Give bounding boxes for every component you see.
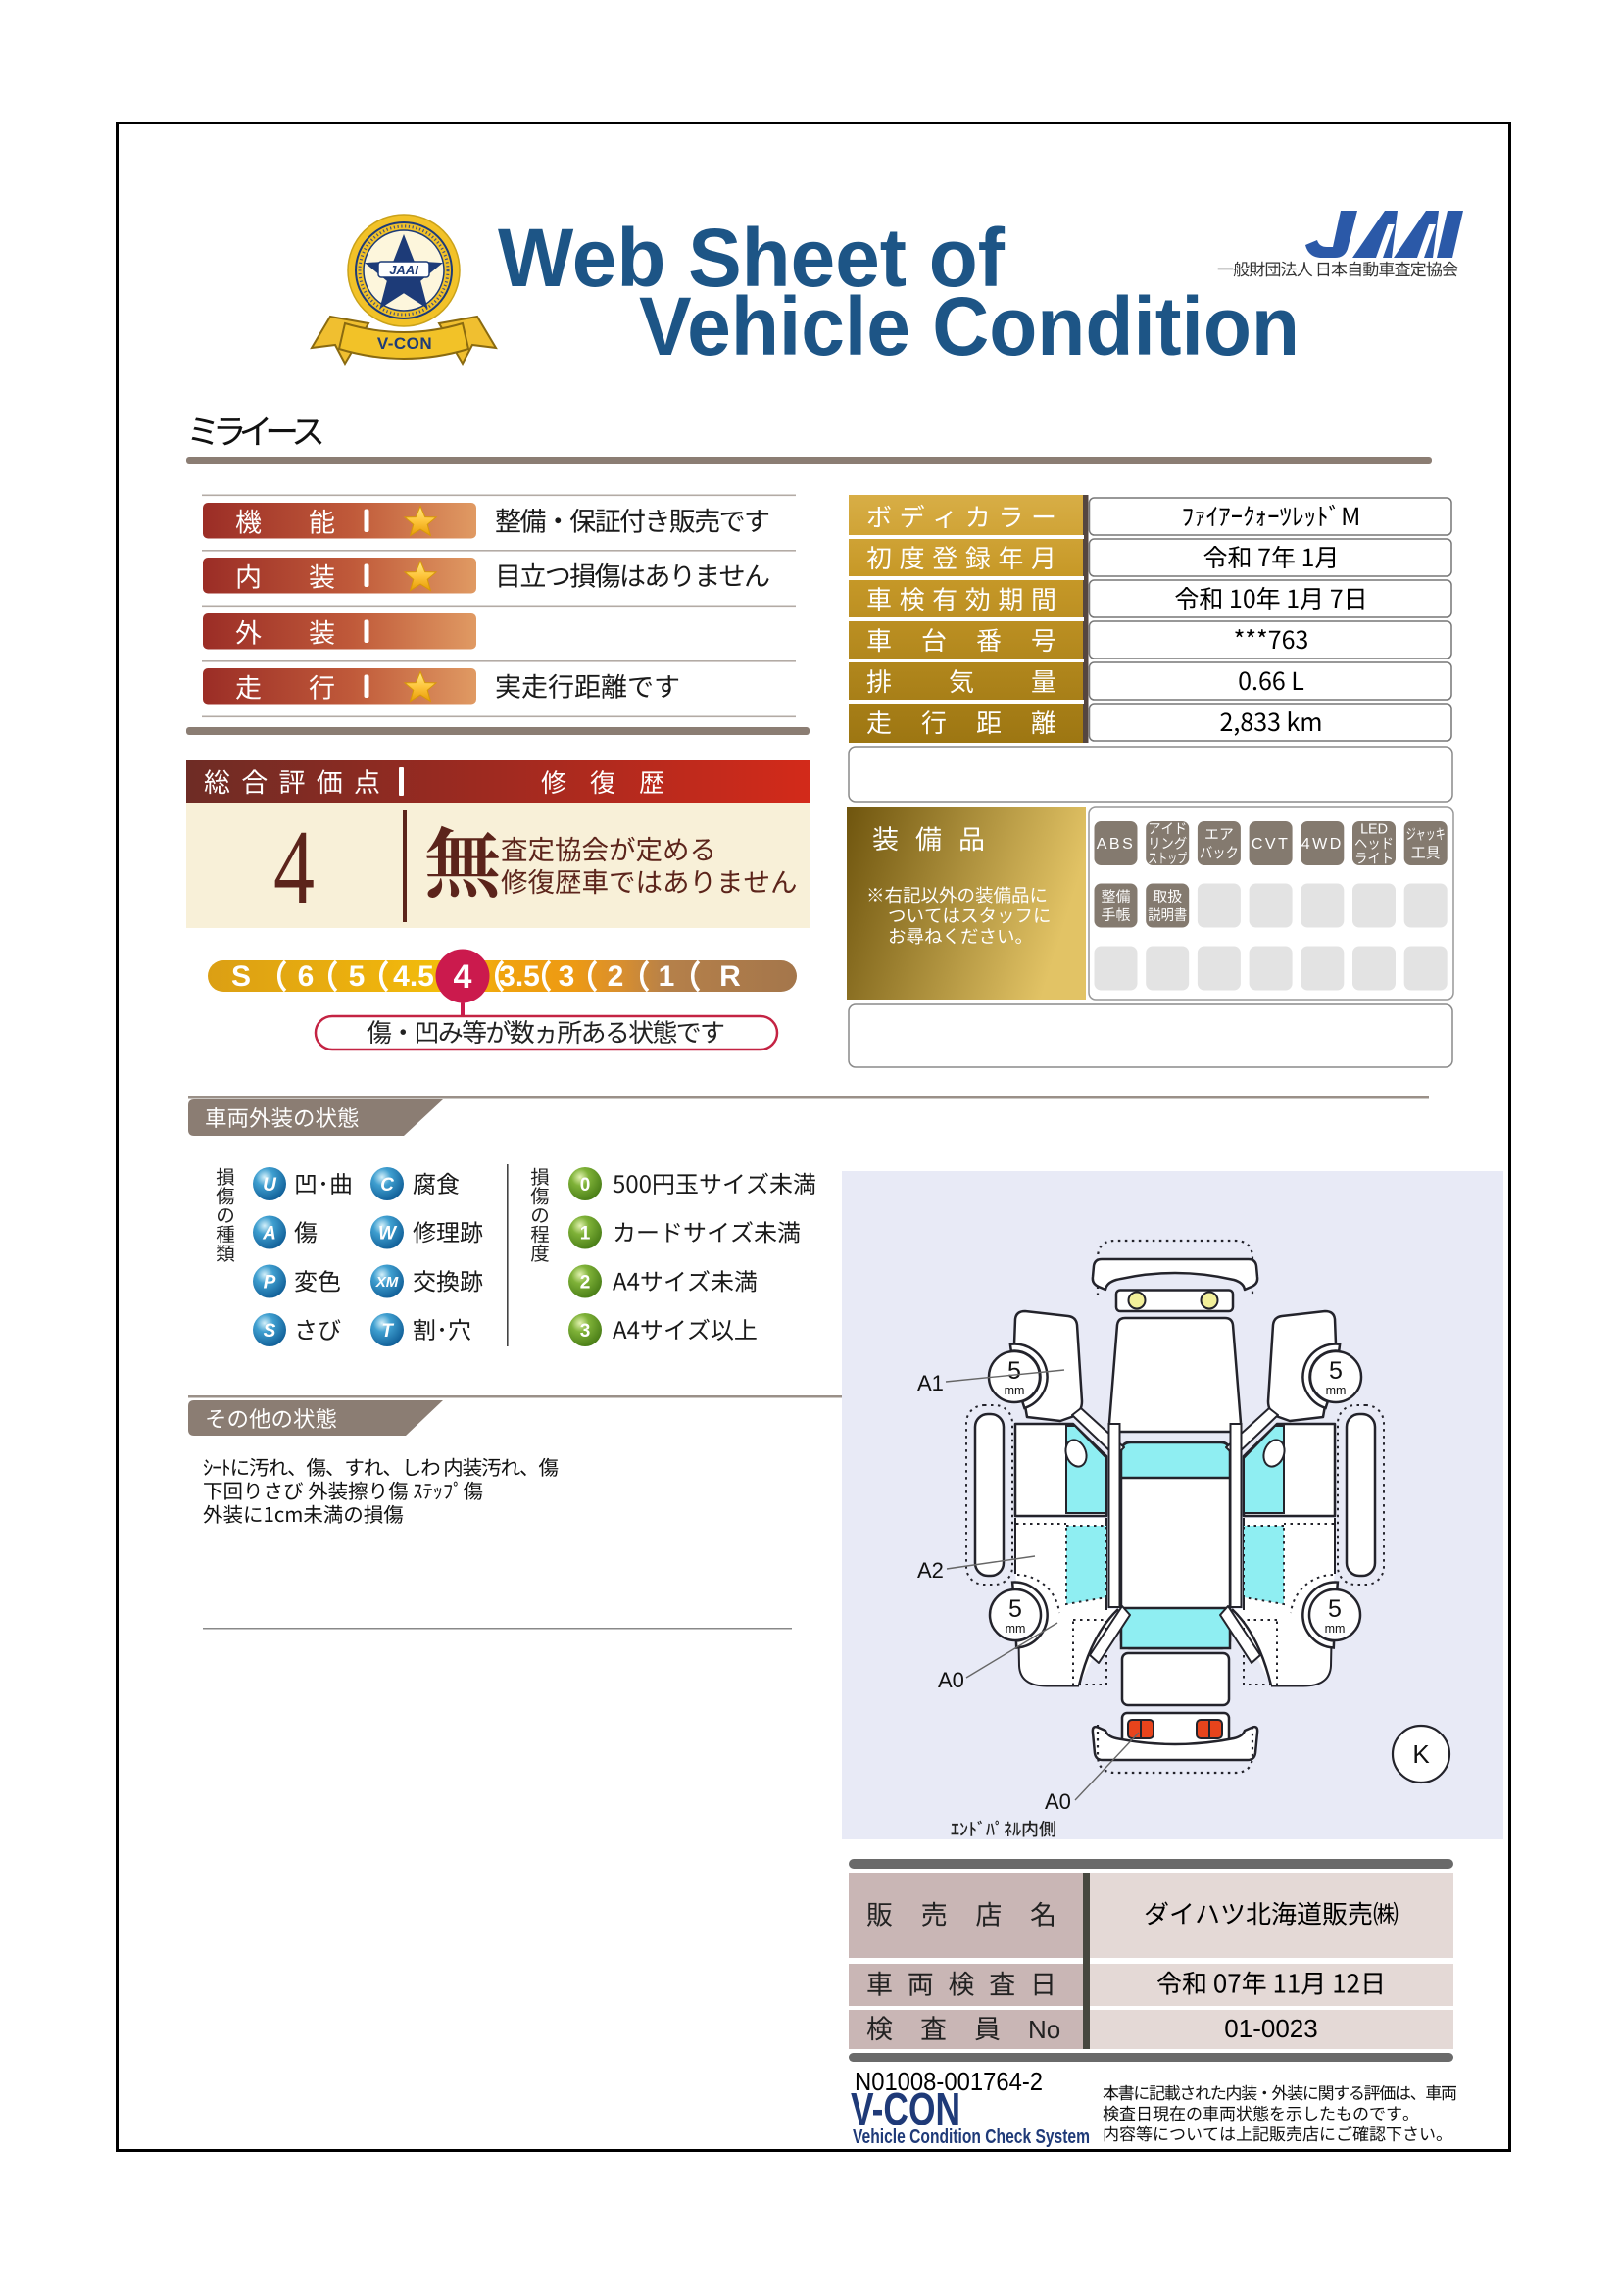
- svg-text:ABS: ABS: [1097, 836, 1136, 853]
- svg-text:3: 3: [559, 960, 575, 993]
- svg-text:W: W: [378, 1223, 398, 1244]
- svg-text:mm: mm: [1006, 1622, 1026, 1636]
- svg-text:No: No: [1028, 2015, 1060, 2044]
- svg-text:XM: XM: [375, 1274, 399, 1291]
- svg-text:5: 5: [1007, 1357, 1021, 1385]
- svg-text:R: R: [719, 960, 741, 993]
- svg-text:A2: A2: [917, 1558, 944, 1583]
- svg-text:Vehicle Condition: Vehicle Condition: [639, 280, 1300, 372]
- svg-text:5: 5: [349, 960, 366, 993]
- svg-text:1: 1: [659, 960, 675, 993]
- svg-text:P: P: [264, 1272, 276, 1293]
- svg-text:4: 4: [454, 958, 472, 996]
- svg-text:5: 5: [1008, 1595, 1022, 1623]
- svg-text:A0: A0: [1045, 1789, 1071, 1814]
- svg-text:mm: mm: [1325, 1622, 1346, 1636]
- svg-text:5: 5: [1329, 1357, 1343, 1385]
- svg-text:T: T: [381, 1321, 394, 1342]
- svg-text:A: A: [262, 1223, 276, 1244]
- svg-text:S: S: [264, 1321, 276, 1342]
- svg-text:A1: A1: [917, 1371, 944, 1395]
- svg-text:2: 2: [608, 960, 624, 993]
- svg-text:V-CON: V-CON: [377, 334, 432, 353]
- svg-text:0: 0: [580, 1175, 591, 1196]
- svg-text:C: C: [380, 1175, 394, 1196]
- svg-text:4.5: 4.5: [393, 960, 434, 993]
- svg-text:3.5: 3.5: [499, 960, 540, 993]
- svg-text:3: 3: [580, 1321, 591, 1342]
- svg-text:5: 5: [1328, 1595, 1342, 1623]
- svg-text:Vehicle Condition Check System: Vehicle Condition Check System: [853, 2126, 1090, 2148]
- svg-text:S: S: [231, 960, 251, 993]
- svg-text:JAAI: JAAI: [389, 263, 418, 277]
- svg-text:2: 2: [580, 1273, 591, 1294]
- svg-text:K: K: [1412, 1739, 1430, 1769]
- svg-text:6: 6: [298, 960, 315, 993]
- svg-text:01-0023: 01-0023: [1224, 2014, 1317, 2043]
- svg-text:4WD: 4WD: [1301, 836, 1344, 853]
- svg-text:1: 1: [580, 1224, 591, 1245]
- svg-text:mm: mm: [1005, 1384, 1025, 1397]
- svg-text:CVT: CVT: [1252, 836, 1291, 853]
- svg-text:4: 4: [273, 809, 315, 926]
- svg-text:A0: A0: [938, 1668, 964, 1692]
- svg-text:mm: mm: [1326, 1384, 1347, 1397]
- svg-text:U: U: [263, 1175, 277, 1196]
- svg-text:LED: LED: [1360, 821, 1388, 837]
